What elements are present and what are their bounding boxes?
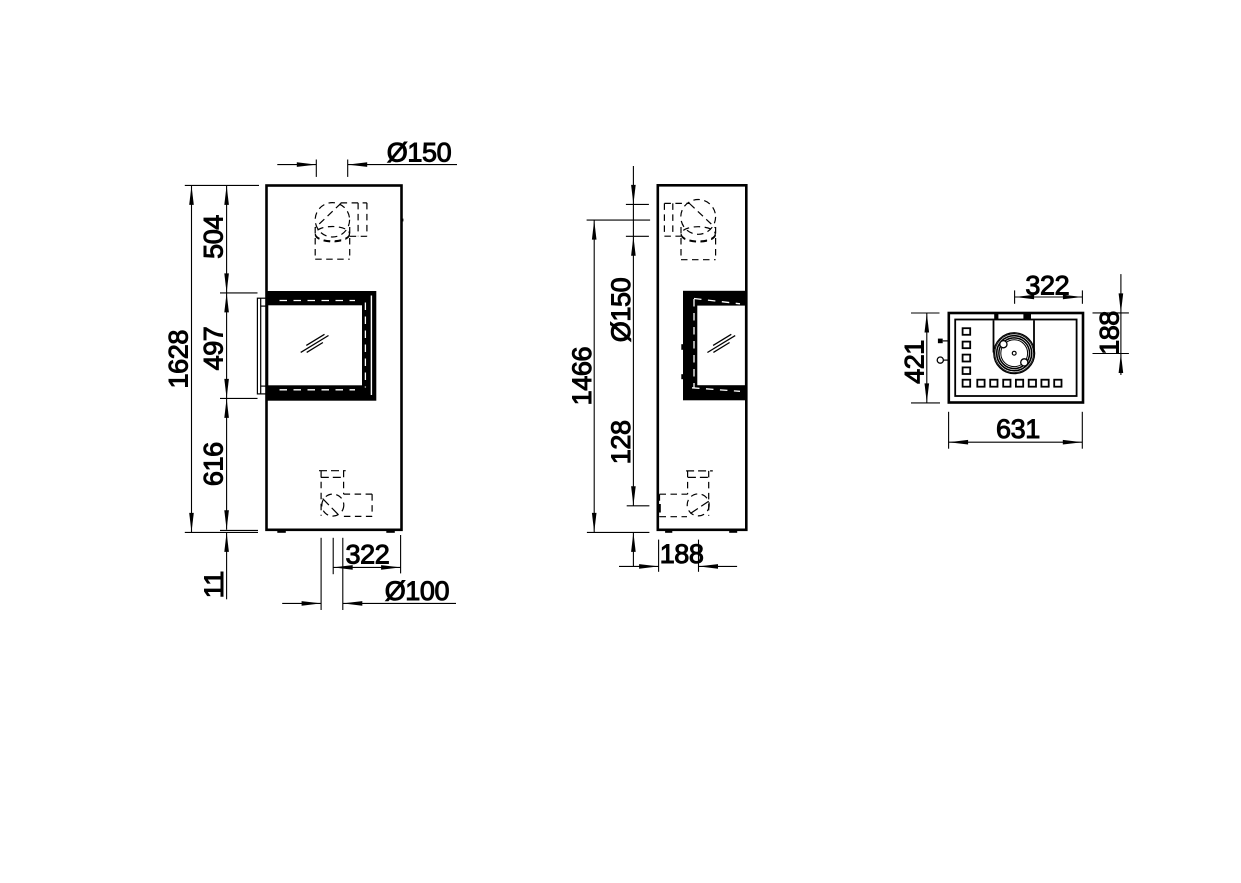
svg-text:Ø150: Ø150: [606, 278, 636, 342]
svg-text:497: 497: [198, 327, 228, 371]
svg-text:616: 616: [198, 442, 228, 486]
svg-text:Ø150: Ø150: [387, 137, 451, 167]
svg-text:1628: 1628: [164, 330, 194, 388]
svg-text:322: 322: [346, 539, 390, 569]
svg-text:128: 128: [606, 420, 636, 464]
svg-text:188: 188: [660, 539, 704, 569]
svg-text:Ø100: Ø100: [385, 576, 449, 606]
svg-text:631: 631: [996, 414, 1040, 444]
svg-text:1466: 1466: [567, 347, 597, 405]
svg-text:322: 322: [1025, 270, 1069, 300]
svg-text:504: 504: [198, 215, 228, 259]
svg-text:421: 421: [899, 340, 929, 384]
svg-text:188: 188: [1095, 311, 1125, 355]
svg-text:11: 11: [199, 571, 229, 598]
